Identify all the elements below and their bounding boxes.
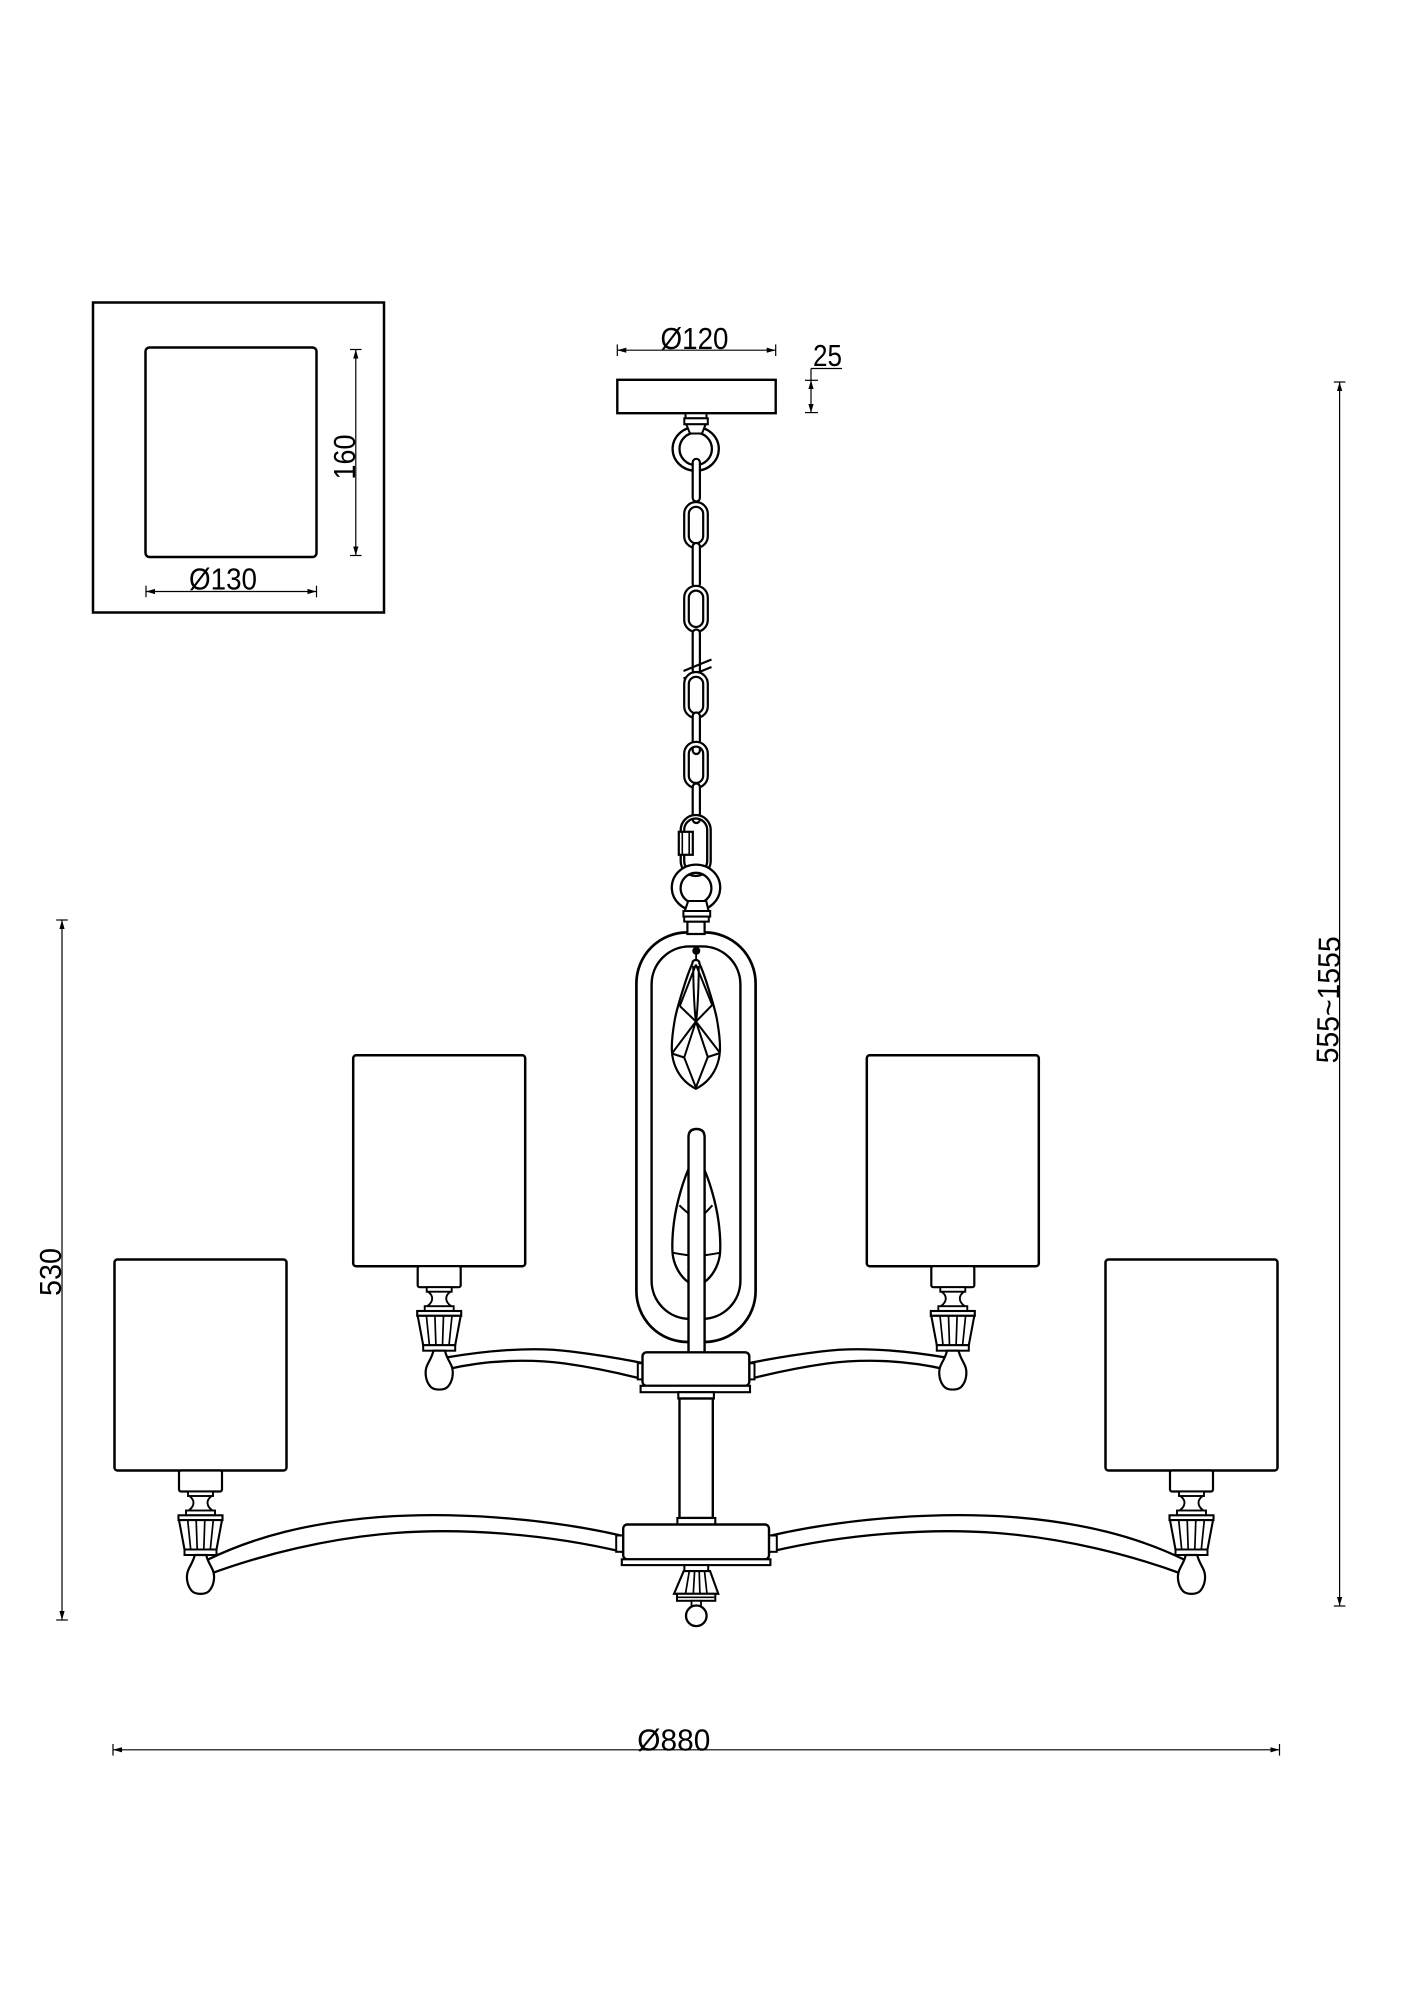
svg-text:Ø120: Ø120 [661, 321, 729, 356]
svg-text:555~1555: 555~1555 [1310, 936, 1347, 1064]
svg-text:160: 160 [327, 435, 362, 480]
svg-text:530: 530 [33, 1248, 68, 1296]
svg-text:Ø880: Ø880 [637, 1723, 710, 1758]
svg-text:25: 25 [813, 338, 842, 373]
svg-text:Ø130: Ø130 [189, 562, 257, 597]
